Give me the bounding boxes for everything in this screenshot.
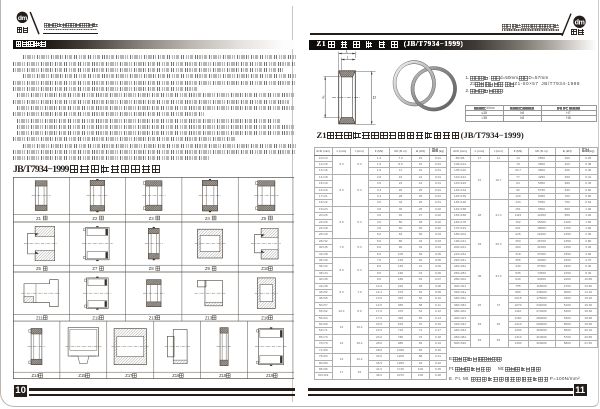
svg-text:Z18: Z18	[219, 373, 227, 378]
svg-text:Z19: Z19	[266, 373, 274, 378]
svg-text:d: d	[322, 95, 325, 100]
svg-text:Z17: Z17	[125, 373, 133, 378]
svg-text:Z13: Z13	[148, 315, 156, 320]
svg-text:Z7: Z7	[92, 266, 98, 271]
svg-text:dm: dm	[18, 15, 28, 22]
svg-text:Z16: Z16	[261, 315, 269, 320]
svg-text:l: l	[347, 55, 349, 60]
svg-text:Z10: Z10	[261, 266, 269, 271]
svg-text:Z5: Z5	[261, 215, 267, 220]
svg-text:Z6: Z6	[36, 266, 42, 271]
svg-text:Z3: Z3	[148, 215, 154, 220]
svg-text:D: D	[372, 95, 376, 100]
svg-text:Z1: Z1	[36, 215, 42, 220]
svg-text:Z13: Z13	[205, 315, 213, 320]
svg-text:Z8: Z8	[148, 266, 154, 271]
svg-text:Z15: Z15	[78, 373, 86, 378]
svg-text:Z14: Z14	[31, 373, 39, 378]
svg-text:Z9: Z9	[205, 266, 211, 271]
svg-text:Z4: Z4	[205, 215, 211, 220]
svg-text:Z2: Z2	[92, 215, 98, 220]
svg-text:Z18: Z18	[172, 373, 180, 378]
svg-text:Z11: Z11	[36, 315, 44, 320]
svg-text:L: L	[345, 49, 349, 54]
svg-text:Z12: Z12	[92, 315, 100, 320]
svg-text:dm: dm	[575, 18, 585, 27]
